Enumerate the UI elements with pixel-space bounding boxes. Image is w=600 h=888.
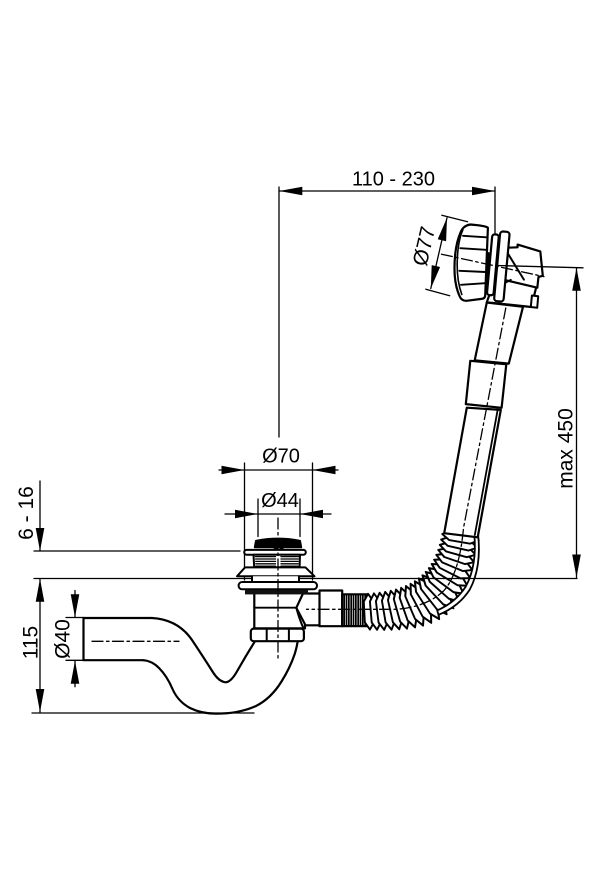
svg-text:Ø77: Ø77 [409, 224, 440, 268]
svg-text:Ø44: Ø44 [261, 490, 299, 512]
svg-text:110 - 230: 110 - 230 [352, 169, 435, 191]
svg-text:115: 115 [20, 626, 43, 659]
svg-text:max 450: max 450 [555, 408, 578, 489]
svg-text:6 - 16: 6 - 16 [15, 486, 38, 540]
svg-text:Ø40: Ø40 [52, 619, 75, 659]
svg-text:Ø70: Ø70 [262, 446, 300, 468]
